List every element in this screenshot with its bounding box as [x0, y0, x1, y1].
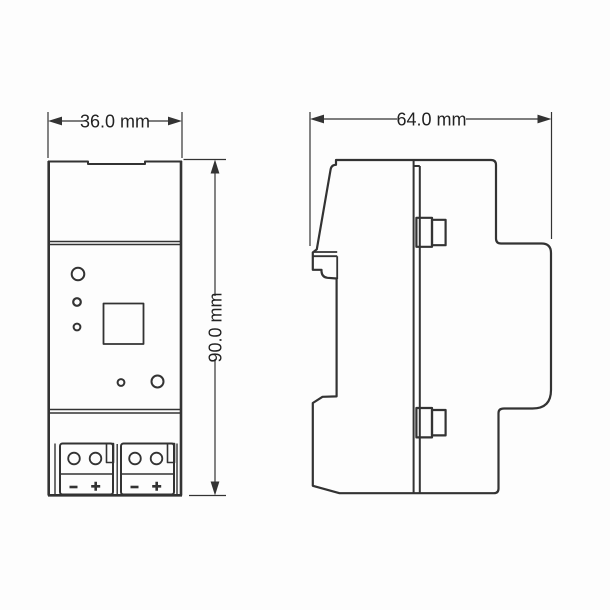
technical-drawing: 36.0 mm: [0, 0, 610, 610]
device-side-profile: [313, 160, 551, 493]
extension-line: [310, 112, 552, 246]
clip-tab-outer: [432, 220, 446, 245]
square-window: [104, 304, 144, 345]
terminal-screw: [68, 453, 80, 465]
arrow-right-icon: [538, 115, 552, 124]
side-width-label: 64.0 mm: [396, 110, 466, 130]
front-panel: [72, 268, 164, 388]
led-indicator-3: [118, 379, 125, 386]
clip-tab-inner: [416, 408, 432, 437]
terminal-screw: [90, 453, 102, 465]
profile-outline: [313, 160, 551, 493]
clip-tab-inner: [416, 218, 432, 247]
terminal-screw: [151, 453, 163, 465]
arrow-down-icon: [211, 482, 220, 496]
terminal-block-right: [121, 444, 175, 495]
mounting-foot-lines: [313, 252, 337, 279]
side-view: 64.0 mm: [310, 110, 552, 494]
module-edge-line: [414, 160, 420, 493]
arrow-right-icon: [168, 117, 182, 126]
plus-symbol-icon: [152, 482, 161, 491]
arrow-up-icon: [211, 160, 220, 174]
front-height-label: 90.0 mm: [206, 292, 226, 362]
device-front-outline: [48, 161, 182, 496]
push-button-top: [72, 268, 85, 281]
upper-divider: [49, 242, 181, 245]
top-edge: [48, 162, 182, 165]
terminal-area: [55, 444, 177, 495]
led-indicator-2: [74, 324, 81, 331]
lower-divider: [49, 410, 181, 414]
push-button-bottom: [152, 376, 164, 388]
side-width-dimension: 64.0 mm: [310, 110, 552, 247]
terminal-screw: [129, 453, 141, 465]
arrow-left-icon: [48, 117, 62, 126]
clip-tab-outer: [432, 410, 446, 435]
front-view: 36.0 mm: [48, 112, 226, 496]
plus-symbol-icon: [91, 482, 100, 491]
front-width-dimension: 36.0 mm: [48, 112, 182, 159]
terminal-body: [121, 444, 174, 495]
terminal-body: [60, 444, 113, 495]
front-width-label: 36.0 mm: [80, 112, 150, 132]
led-indicator-1: [73, 298, 81, 306]
terminal-block-left: [60, 444, 114, 495]
arrow-left-icon: [310, 115, 324, 124]
front-height-dimension: 90.0 mm: [184, 160, 227, 496]
